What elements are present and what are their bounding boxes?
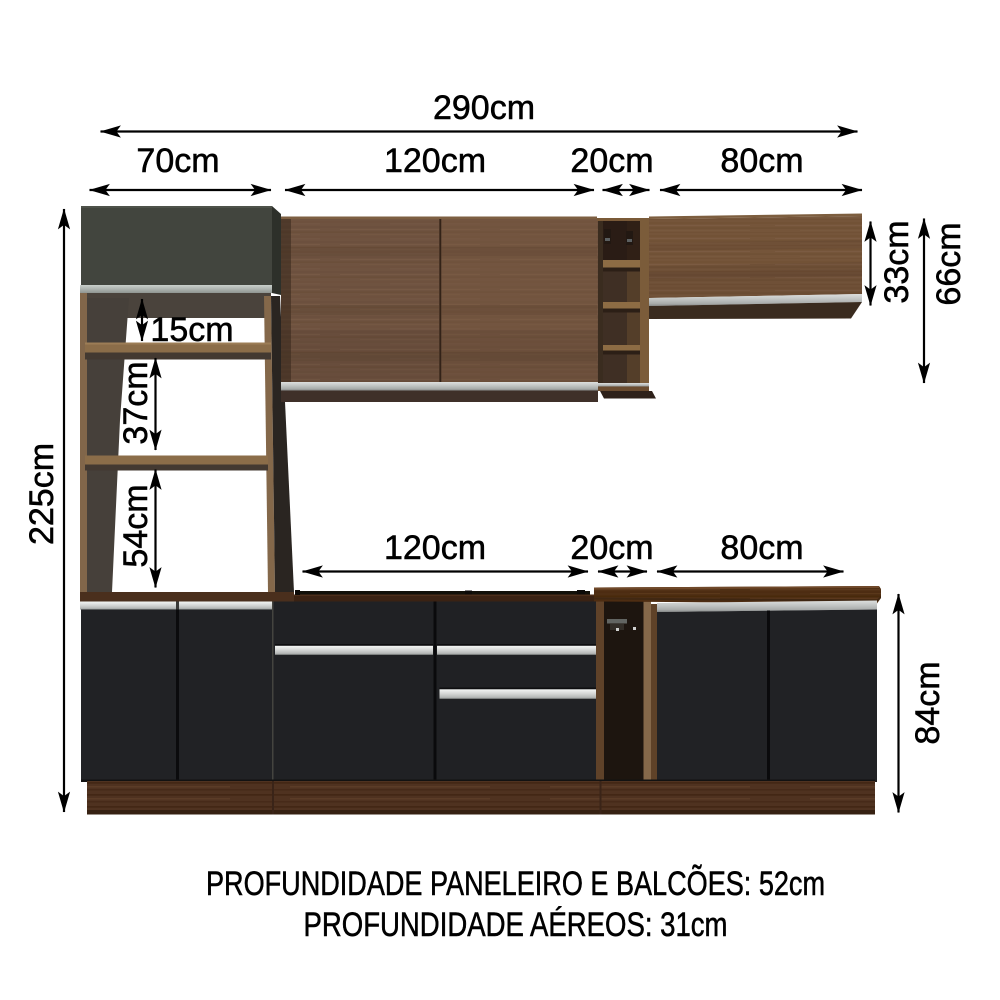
svg-text:290cm: 290cm	[433, 89, 535, 127]
svg-text:PROFUNDIDADE AÉREOS: 31cm: PROFUNDIDADE AÉREOS: 31cm	[304, 906, 728, 944]
svg-text:33cm: 33cm	[878, 220, 916, 303]
svg-text:70cm: 70cm	[136, 142, 219, 180]
svg-text:84cm: 84cm	[909, 661, 947, 744]
svg-text:PROFUNDIDADE PANELEIRO E BALCÕ: PROFUNDIDADE PANELEIRO E BALCÕES: 52cm	[206, 865, 825, 903]
svg-text:20cm: 20cm	[570, 529, 653, 567]
svg-text:66cm: 66cm	[930, 222, 968, 305]
svg-text:80cm: 80cm	[720, 529, 803, 567]
svg-text:54cm: 54cm	[117, 484, 155, 567]
svg-text:120cm: 120cm	[384, 142, 486, 180]
svg-text:225cm: 225cm	[23, 443, 61, 545]
svg-text:37cm: 37cm	[117, 361, 155, 444]
svg-text:20cm: 20cm	[570, 142, 653, 180]
svg-text:15cm: 15cm	[150, 311, 233, 349]
svg-text:120cm: 120cm	[384, 529, 486, 567]
svg-text:80cm: 80cm	[720, 142, 803, 180]
